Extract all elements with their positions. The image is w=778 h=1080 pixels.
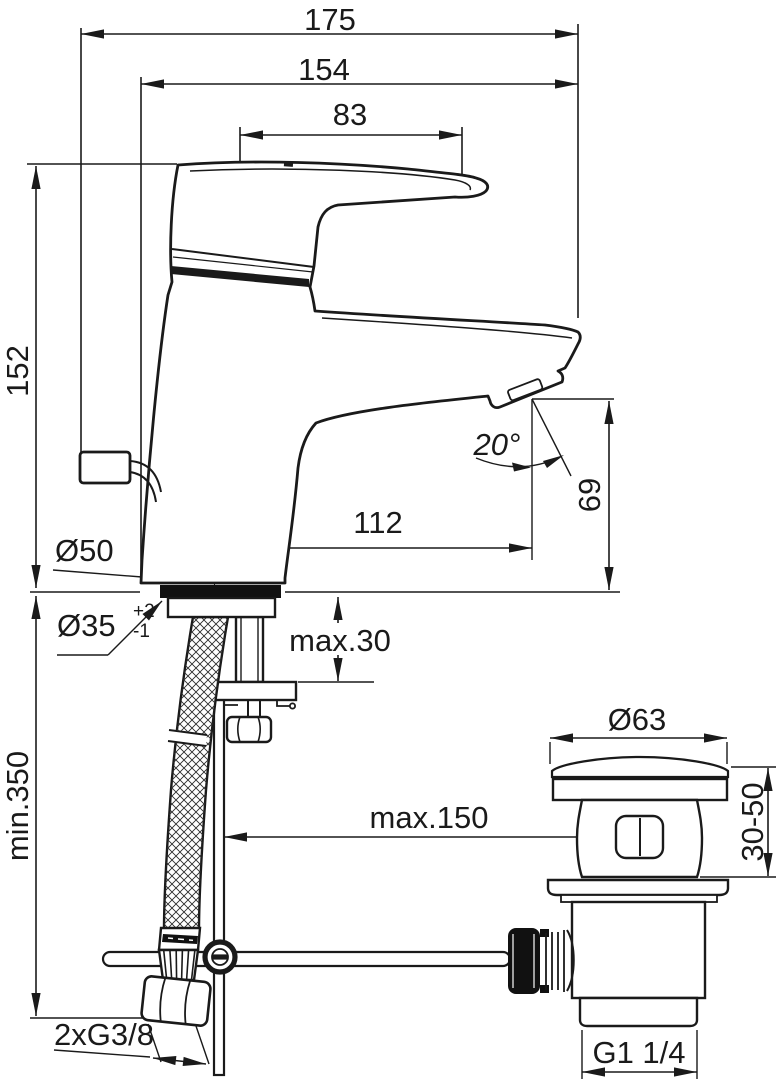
pull-rod-knob [80,452,130,483]
faucet-dimension-diagram: 175 154 83 152 112 20° 69 Ø50 Ø35 +2 -1 … [0,0,778,1080]
popup-rod-pivot [205,942,235,972]
popup-waste-assembly [508,757,728,1026]
dim-projection: 154 [298,52,350,87]
dim-spout-reach: 112 [353,505,402,540]
label-hose-length: min.350 [0,751,35,861]
popup-pull-rod [214,699,224,1075]
under-deck-assembly [103,617,510,1075]
label-rod-travel: max.150 [370,800,489,835]
label-waste-diameter: Ø63 [608,702,667,737]
base-flange [168,598,275,617]
label-deck-thickness: max.30 [289,623,391,658]
label-hole-tol-plus: +2 [133,601,155,622]
dim-lever-length: 83 [333,97,367,132]
label-waste-deck-range: 30-50 [735,782,770,861]
waste-tailpiece [580,998,697,1026]
label-base-diameter: Ø50 [55,533,114,568]
dim-overall-width: 175 [304,2,356,37]
dim-body-height: 152 [0,345,35,397]
technical-drawing: 175 154 83 152 112 20° 69 Ø50 Ø35 +2 -1 … [0,0,778,1080]
waste-cap [552,757,728,777]
label-waste-thread: G1 1/4 [592,1035,685,1070]
mounting-nut [227,717,271,742]
base-ring [160,585,281,598]
lever-index-mark [284,162,293,167]
label-supply-thread: 2xG3/8 [54,1017,154,1052]
dim-spout-angle: 20° [473,427,521,462]
label-hole-diameter: Ø35 [57,608,116,643]
dim-spout-height: 69 [572,478,607,512]
label-hole-tol-minus: -1 [133,621,150,642]
